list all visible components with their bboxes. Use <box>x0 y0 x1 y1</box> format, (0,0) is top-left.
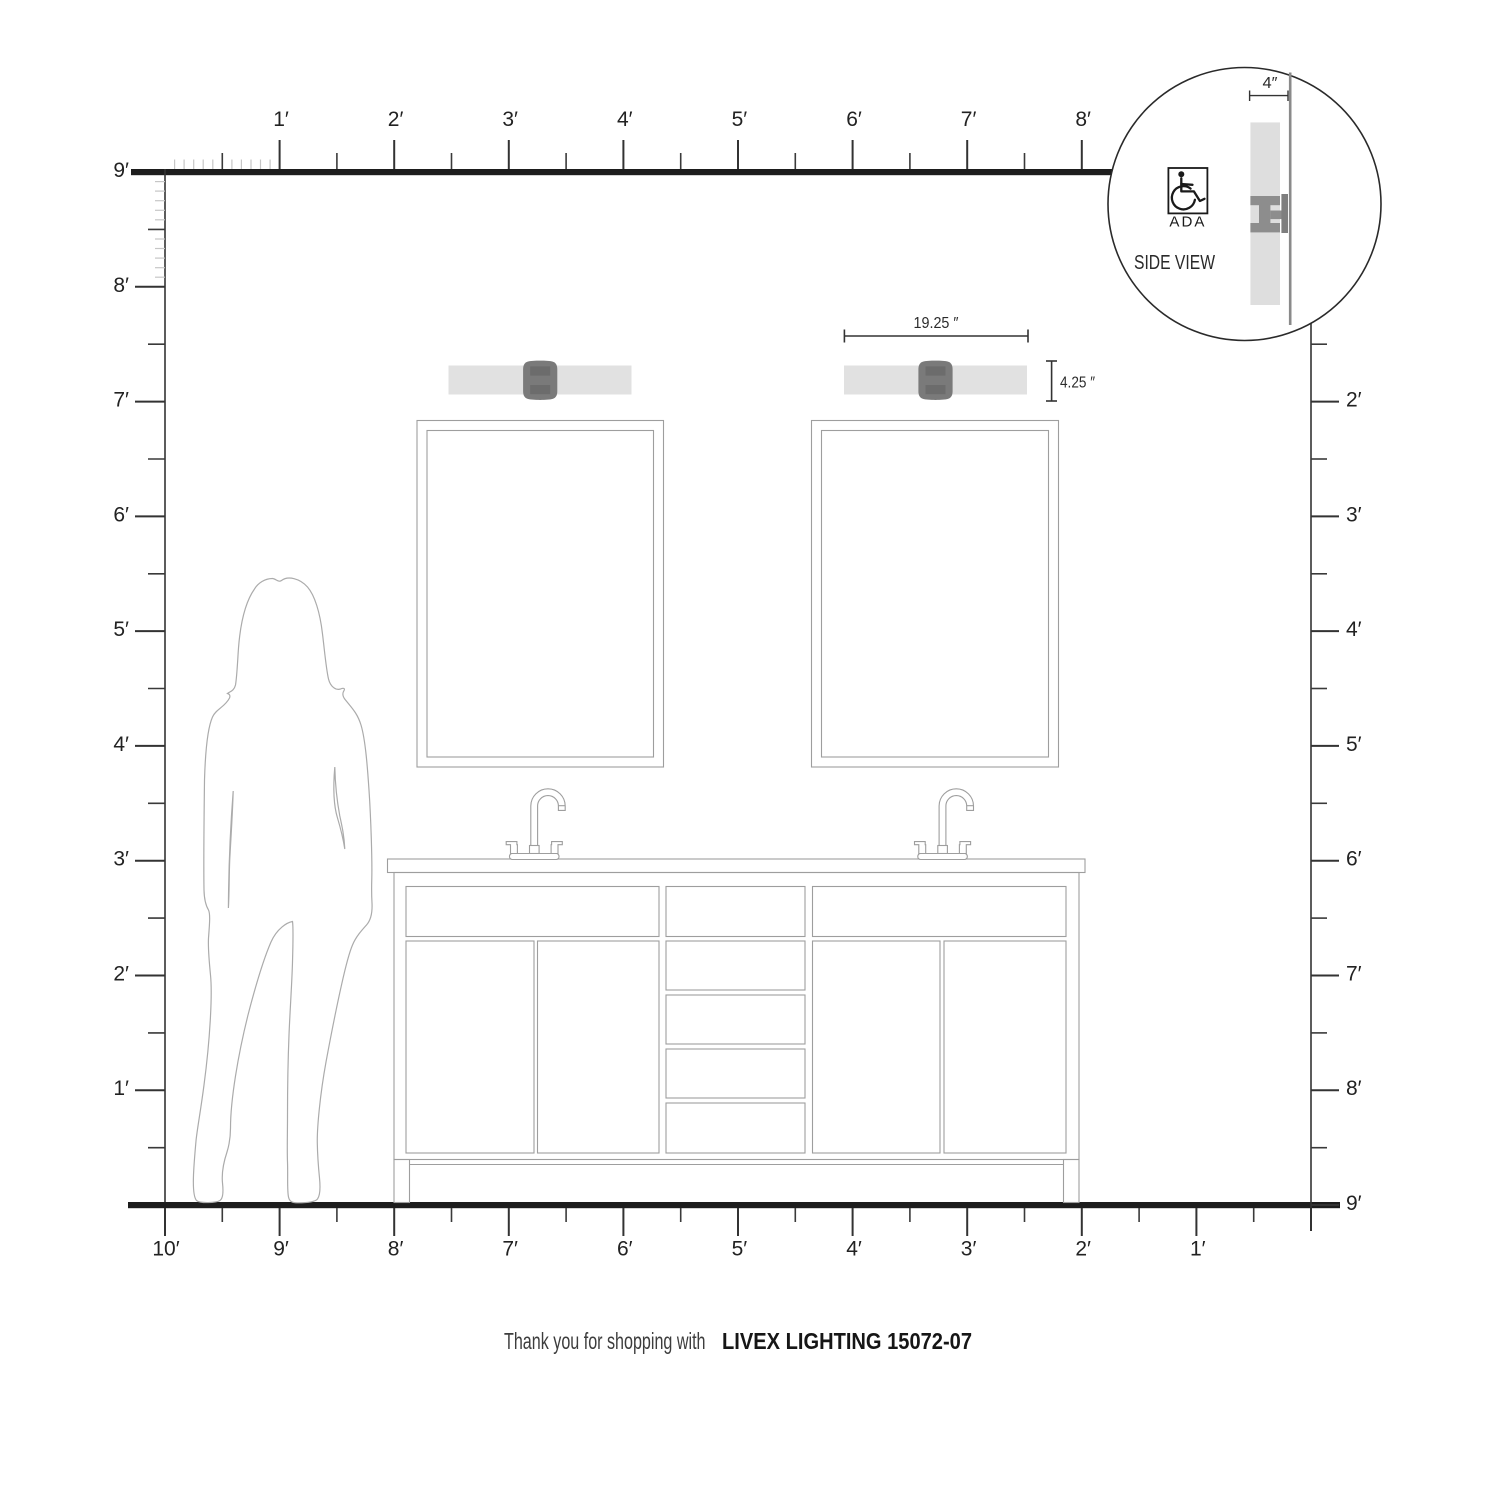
svg-text:ADA: ADA <box>1169 214 1206 231</box>
svg-text:9′: 9′ <box>113 159 129 182</box>
svg-text:5′: 5′ <box>732 1238 748 1261</box>
svg-text:7′: 7′ <box>961 108 977 131</box>
svg-text:1′: 1′ <box>1190 1238 1206 1261</box>
svg-text:4′: 4′ <box>113 733 129 756</box>
svg-text:2′: 2′ <box>113 963 129 986</box>
svg-text:3′: 3′ <box>961 1238 977 1261</box>
svg-text:3′: 3′ <box>1346 503 1362 526</box>
svg-text:8′: 8′ <box>388 1238 404 1261</box>
svg-text:4′: 4′ <box>617 108 633 131</box>
svg-text:1′: 1′ <box>273 108 289 131</box>
svg-text:7′: 7′ <box>113 389 129 412</box>
svg-text:4″: 4″ <box>1263 75 1279 92</box>
svg-text:19.25 ″: 19.25 ″ <box>914 315 959 332</box>
svg-text:9′: 9′ <box>1346 1192 1362 1215</box>
svg-text:6′: 6′ <box>113 503 129 526</box>
svg-text:4′: 4′ <box>846 1238 862 1261</box>
svg-text:6′: 6′ <box>617 1238 633 1261</box>
svg-text:1′: 1′ <box>113 1077 129 1100</box>
svg-text:5′: 5′ <box>732 108 748 131</box>
svg-text:5′: 5′ <box>113 618 129 641</box>
svg-text:4.25 ″: 4.25 ″ <box>1060 375 1095 392</box>
svg-text:5′: 5′ <box>1346 733 1362 756</box>
svg-text:9′: 9′ <box>273 1238 289 1261</box>
svg-text:8′: 8′ <box>113 274 129 297</box>
svg-text:8′: 8′ <box>1075 108 1091 131</box>
svg-text:7′: 7′ <box>502 1238 518 1261</box>
svg-text:4′: 4′ <box>1346 618 1362 641</box>
svg-text:3′: 3′ <box>113 848 129 871</box>
svg-text:6′: 6′ <box>1346 848 1362 871</box>
svg-text:SIDE VIEW: SIDE VIEW <box>1134 252 1215 274</box>
svg-text:10′: 10′ <box>152 1238 179 1261</box>
svg-text:2′: 2′ <box>388 108 404 131</box>
svg-text:2′: 2′ <box>1075 1238 1091 1261</box>
svg-text:3′: 3′ <box>502 108 518 131</box>
svg-text:2′: 2′ <box>1346 389 1362 412</box>
svg-text:8′: 8′ <box>1346 1077 1362 1100</box>
svg-text:Thank you for shopping with LI: Thank you for shopping with LIVEX LIGHTI… <box>504 1328 972 1354</box>
svg-text:6′: 6′ <box>846 108 862 131</box>
svg-text:7′: 7′ <box>1346 963 1362 986</box>
